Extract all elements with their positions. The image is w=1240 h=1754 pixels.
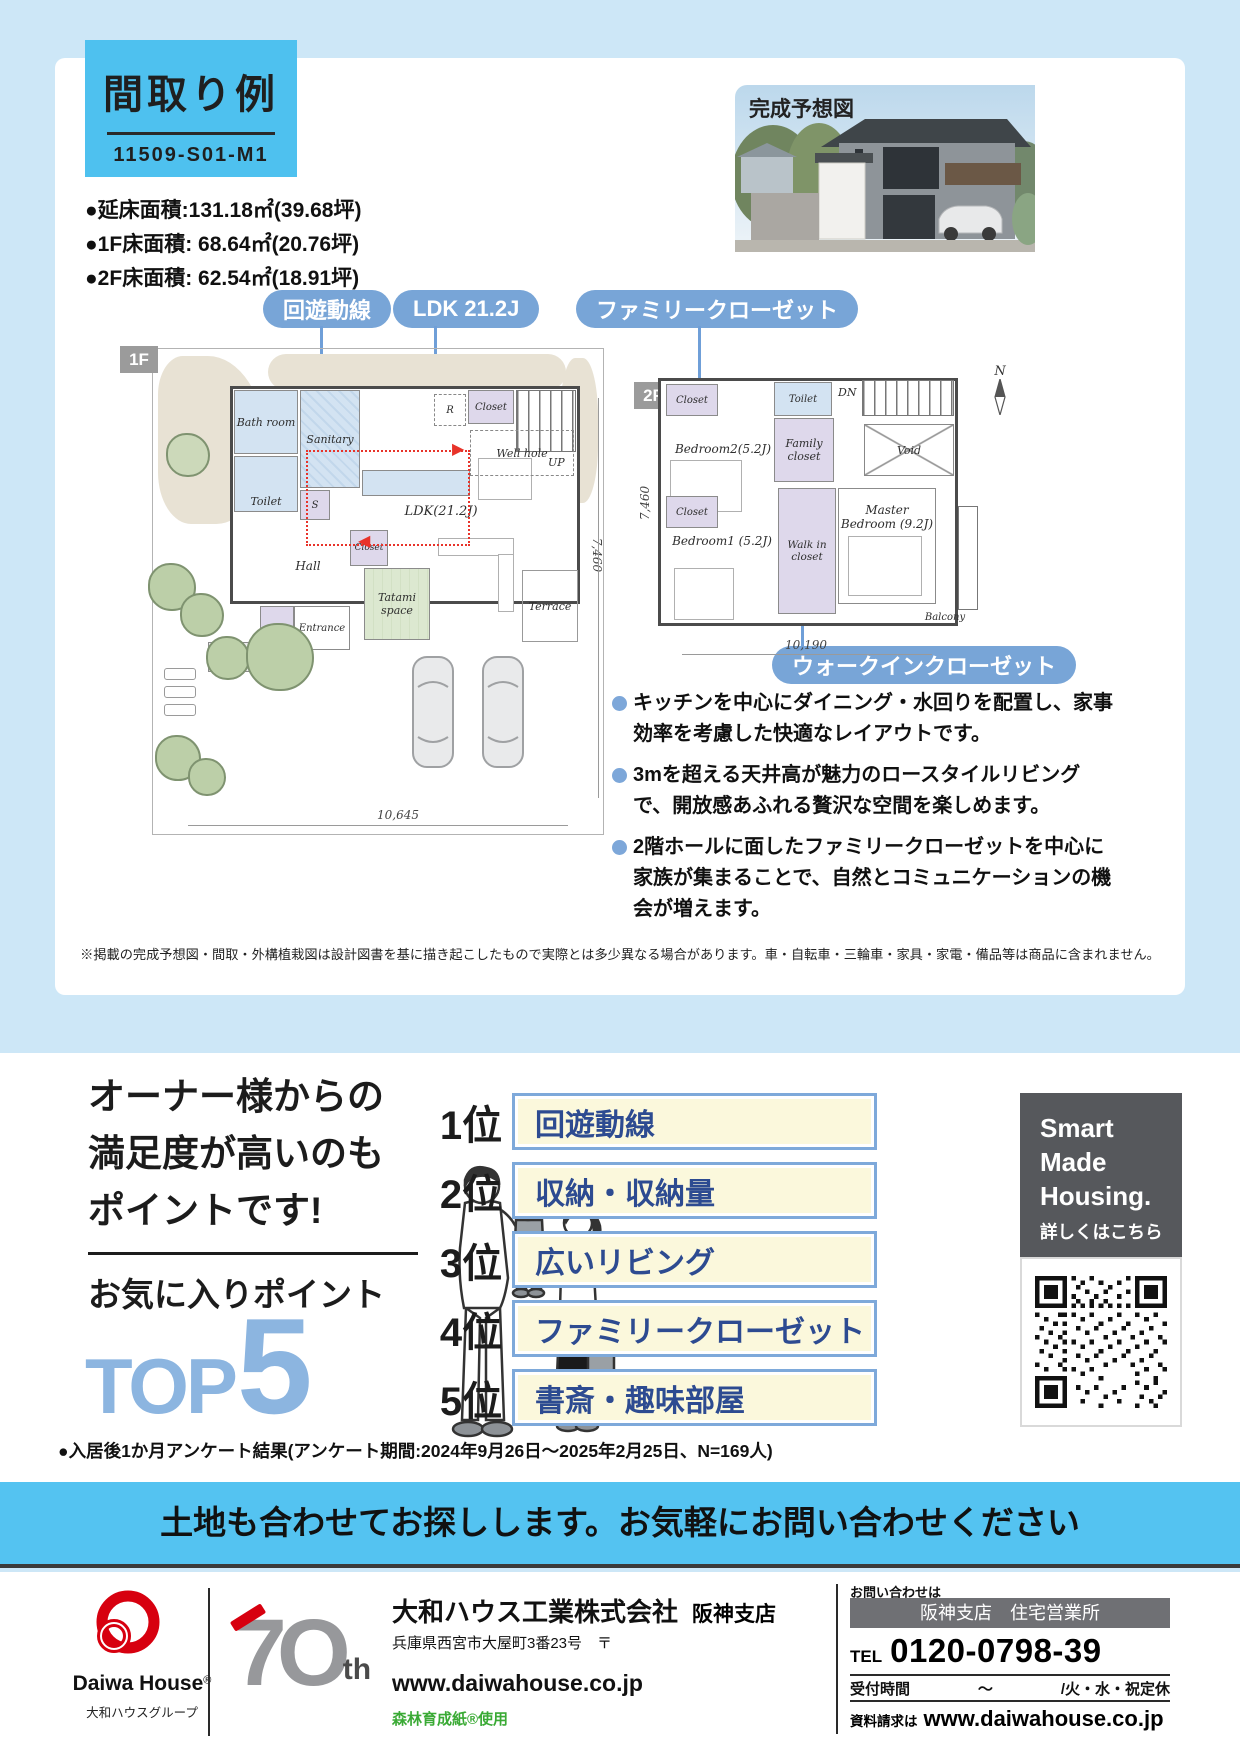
top-word: TOP [85, 1347, 235, 1425]
label-dn: DN [838, 386, 856, 399]
tree [188, 758, 226, 796]
room-well-hole: Well hole [470, 430, 574, 476]
flyer-page: 間取り例 11509-S01-M1 ●延床面積:131.18㎡(39.68坪) … [0, 0, 1240, 1754]
rank-label-box: 収納・収納量 [512, 1162, 877, 1219]
title-box: 間取り例 11509-S01-M1 [85, 40, 297, 177]
plan-code: 11509-S01-M1 [85, 144, 297, 167]
feature-item: 2階ホールに面したファミリークローゼットを中心に家族が集まることで、自然とコミュ… [612, 832, 1117, 925]
tree [166, 433, 210, 477]
rank-row-4: 4位 ファミリークローゼット [430, 1300, 877, 1357]
room-closet-a: Closet [666, 384, 718, 416]
compass-n-label: N [985, 364, 1015, 379]
stairs-2f [862, 380, 954, 416]
rank-label-box: 広いリビング [512, 1231, 877, 1288]
logo-group-label: 大和ハウスグループ [62, 1702, 222, 1721]
callout-family-closet: ファミリークローゼット [576, 290, 858, 328]
rank-label-box: 書斎・趣味部屋 [512, 1369, 877, 1426]
company-url: www.daiwahouse.co.jp [392, 1670, 643, 1697]
rendering-caption: 完成予想図 [749, 93, 854, 123]
smh-line: Housing. [1040, 1179, 1182, 1213]
branch-name: 阪神支店 [692, 1603, 776, 1626]
circulation-loop [306, 450, 470, 546]
heading-line: 満足度が高いのも [88, 1125, 384, 1182]
room-terrace: Terrace [522, 570, 578, 642]
landscape-area [268, 354, 566, 390]
compass-needle [989, 379, 1011, 415]
feature-item: 3mを超える天井高が魅力のロースタイルリビングで、開放感あふれる贅沢な空間を楽し… [612, 760, 1117, 822]
dimension-line [682, 654, 932, 655]
smh-line: Smart [1040, 1111, 1182, 1145]
smh-line: Made [1040, 1145, 1182, 1179]
label-bedroom2: Bedroom2(5.2J) [662, 442, 784, 456]
dimension-2f-height: 7,460 [638, 486, 652, 520]
circulation-arrow-right: ▶ [452, 442, 464, 458]
floor-areas: ●延床面積:131.18㎡(39.68坪) ●1F床面積: 68.64㎡(20.… [85, 194, 361, 296]
room-family-closet: Family closet [774, 418, 834, 482]
feature-text: 3mを超える天井高が魅力のロースタイルリビングで、開放感あふれる贅沢な空間を楽し… [633, 760, 1117, 822]
tree [206, 636, 250, 680]
top5-heading: オーナー様からの 満足度が高いのも ポイントです! [88, 1068, 384, 1239]
heading-line: ポイントです! [88, 1182, 384, 1239]
daiwa-house-logo-text: Daiwa House® [62, 1672, 222, 1696]
room-void: Void [864, 424, 954, 476]
circulation-arrow-left: ◀ [358, 534, 370, 550]
room-tatami-space: Tatami space [364, 568, 430, 640]
contact-rule [850, 1700, 1170, 1702]
daiwa-house-logo-icon [86, 1586, 166, 1666]
floor-badge-1f: 1F [120, 346, 158, 373]
contact-hours-row: 受付時間 〜 /火・水・祝定休 [850, 1678, 1170, 1699]
qr-code [1035, 1276, 1167, 1408]
feature-text: 2階ホールに面したファミリークローゼットを中心に家族が集まることで、自然とコミュ… [633, 832, 1117, 925]
logo-name: Daiwa House [73, 1672, 204, 1695]
request-label: 資料請求は [850, 1710, 918, 1730]
callout-circulation: 回遊動線 [263, 290, 391, 328]
dimension-1f-width: 10,645 [348, 808, 448, 822]
request-url: www.daiwahouse.co.jp [924, 1706, 1164, 1732]
dimension-2f-width: 10,190 [756, 638, 856, 652]
rank-number: 2位 [430, 1162, 512, 1220]
tel-number: 0120-0798-39 [890, 1632, 1102, 1670]
anniv-zero: O [277, 1600, 351, 1706]
callout-ldk: LDK 21.2J [393, 290, 539, 328]
room-closet-b: Closet [666, 496, 718, 528]
rank-row-2: 2位 収納・収納量 [430, 1162, 877, 1219]
contact-rule [850, 1674, 1170, 1676]
disclaimer-text: ※掲載の完成予想図・間取・外構植栽図は設計図書を基に描き起こしたもので実際とは多… [75, 944, 1165, 963]
heading-line: オーナー様からの [88, 1068, 384, 1125]
rank-number: 5位 [430, 1369, 512, 1427]
room-toilet-2f: Toilet [774, 382, 832, 416]
company-name: 大和ハウス工業株式会社 [392, 1597, 678, 1627]
anniversary-70th-logo: 7Oth [234, 1606, 374, 1726]
car-top-view [480, 653, 526, 771]
tree [180, 593, 224, 637]
paper-note: 森林育成紙®使用 [392, 1708, 508, 1729]
room-bathroom: Bath room [234, 390, 298, 454]
sofa [498, 554, 514, 612]
title-divider [107, 132, 275, 135]
rank-row-1: 1位 回遊動線 [430, 1093, 877, 1150]
bicycle-icon [164, 704, 196, 716]
exterior-rendering: 完成予想図 [735, 85, 1035, 252]
contact-request-row: 資料請求は www.daiwahouse.co.jp [850, 1706, 1164, 1732]
contact-banner: 土地も合わせてお探しします。お気軽にお問い合わせください [0, 1482, 1240, 1568]
room-refrigerator: R [434, 394, 466, 426]
feature-list: キッチンを中心にダイニング・水回りを配置し、家事効率を考慮した快適なレイアウトで… [612, 688, 1117, 935]
car-top-view [410, 653, 456, 771]
rank-row-3: 3位 広いリビング [430, 1231, 877, 1288]
room-toilet-1f: Toilet [234, 456, 298, 512]
company-block: 大和ハウス工業株式会社阪神支店 [392, 1592, 776, 1629]
rank-row-5: 5位 書斎・趣味部屋 [430, 1369, 877, 1426]
bed [674, 568, 734, 620]
footer-divider [208, 1588, 210, 1736]
page-title: 間取り例 [85, 62, 297, 120]
floor-plan-2f: 2F Closet Bedroom2(5.2J) Toilet DN Famil… [626, 356, 978, 666]
smh-cta: 詳しくはこちら [1040, 1219, 1182, 1244]
rank-number: 1位 [430, 1093, 512, 1151]
rank-number: 4位 [430, 1300, 512, 1358]
survey-note: ●入居後1か月アンケート結果(アンケート期間:2024年9月26日〜2025年2… [58, 1438, 773, 1463]
feature-text: キッチンを中心にダイニング・水回りを配置し、家事効率を考慮した快適なレイアウトで… [633, 688, 1117, 750]
banner-text: 土地も合わせてお探しします。お気軽にお問い合わせください [160, 1504, 1080, 1541]
top5-logo: TOP 5 [85, 1308, 313, 1425]
room-balcony [958, 506, 978, 610]
rank-label-box: 回遊動線 [512, 1093, 877, 1150]
label-bedroom1: Bedroom1 (5.2J) [670, 534, 774, 548]
contact-office-bar: 阪神支店 住宅営業所 [850, 1598, 1170, 1628]
dimension-line [598, 398, 599, 798]
room-closet-top: Closet [468, 390, 514, 424]
anniv-th: th [343, 1653, 371, 1686]
bullet-icon [612, 840, 627, 855]
tel-label: TEL [850, 1647, 882, 1667]
bed [848, 536, 922, 596]
rank-label-box: ファミリークローゼット [512, 1300, 877, 1357]
total-floor-area: ●延床面積:131.18㎡(39.68坪) [85, 194, 361, 228]
contact-tel-row: TEL 0120-0798-39 [850, 1632, 1102, 1670]
rank-number: 3位 [430, 1231, 512, 1289]
compass-icon: N [985, 364, 1015, 420]
bicycle-icon [164, 686, 196, 698]
smart-made-housing-box: Smart Made Housing. 詳しくはこちら [1020, 1093, 1182, 1257]
top-number: 5 [237, 1308, 313, 1425]
tree [246, 623, 314, 691]
bicycle-icon [164, 668, 196, 680]
contact-box-border [836, 1584, 838, 1734]
label-balcony: Balcony [910, 612, 980, 623]
hours-tilde: 〜 [978, 1678, 993, 1699]
hours-closed: /火・水・祝定休 [1061, 1678, 1170, 1699]
qr-code-frame [1020, 1257, 1182, 1427]
feature-item: キッチンを中心にダイニング・水回りを配置し、家事効率を考慮した快適なレイアウトで… [612, 688, 1117, 750]
bullet-icon [612, 696, 627, 711]
bullet-icon [612, 768, 627, 783]
company-address: 兵庫県西宮市大屋町3番23号 〒 [392, 1632, 612, 1653]
room-walk-in-closet: Walk in closet [778, 488, 836, 614]
floor1-area: ●1F床面積: 68.64㎡(20.76坪) [85, 228, 361, 262]
dimension-line [188, 825, 568, 826]
hours-label: 受付時間 [850, 1678, 910, 1699]
floor-plan-1f: 1F Bath room Sanitary S Toilet R Closet … [118, 338, 608, 868]
heading-divider [88, 1252, 418, 1255]
